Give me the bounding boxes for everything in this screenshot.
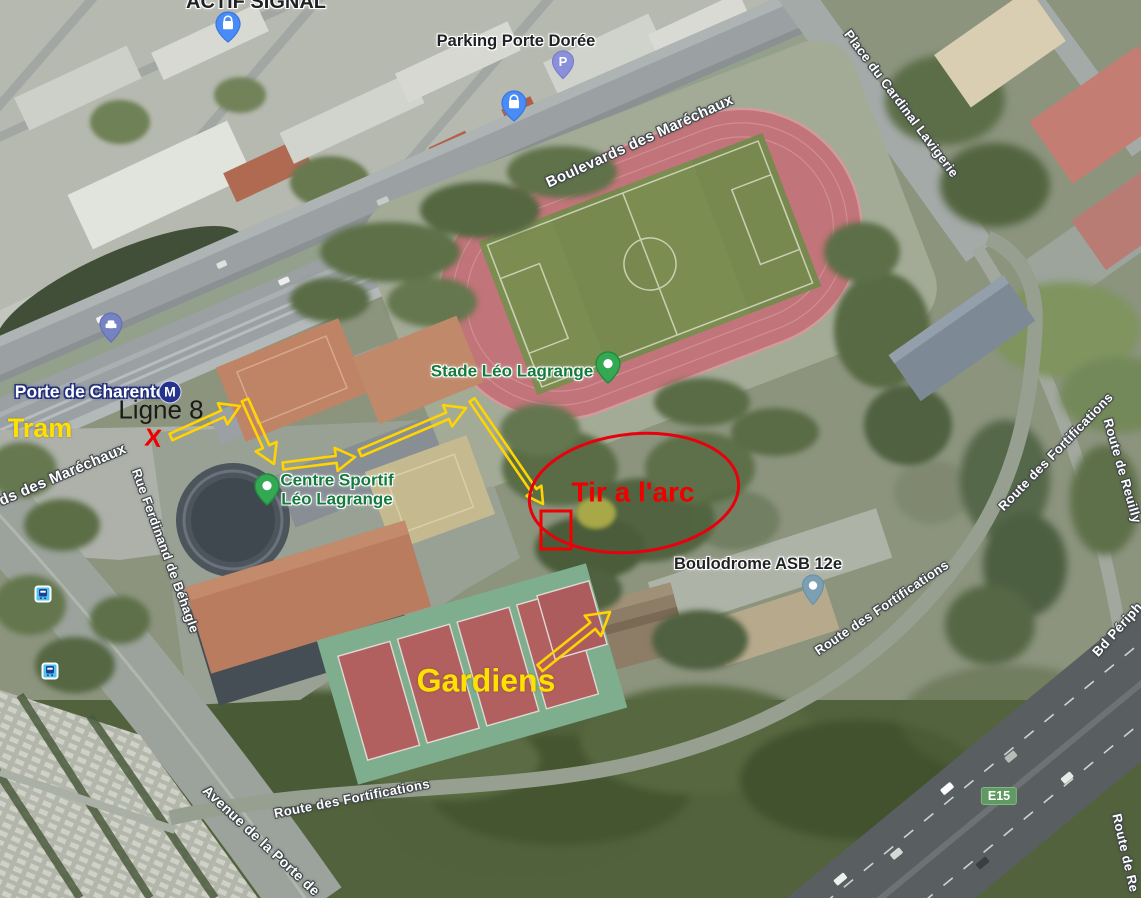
- shop-marker-actif-signal[interactable]: [215, 11, 241, 48]
- route-arrow: [283, 448, 355, 471]
- pin-shape: [803, 575, 824, 605]
- route-shield-e15: E15: [981, 787, 1017, 805]
- poi-marker-stade[interactable]: [595, 351, 621, 389]
- tram-stop-icon-2[interactable]: [42, 663, 59, 680]
- route-arrow: [242, 399, 277, 464]
- pin-dot: [262, 481, 271, 490]
- metro-logo[interactable]: M: [159, 381, 182, 404]
- train-icon: [45, 666, 56, 677]
- poi-marker-centre-sportif[interactable]: [254, 473, 280, 511]
- poi-label-boulodrome[interactable]: Boulodrome ASB 12e: [674, 555, 842, 573]
- poi-label-actif-signal[interactable]: ACTIF SIGNAL: [186, 0, 326, 13]
- car-rental-marker[interactable]: [99, 312, 123, 348]
- annotation-tram: Tram: [8, 414, 73, 444]
- tram-stop-icon-1[interactable]: [35, 586, 52, 603]
- annotation-x-mark: X: [143, 424, 162, 453]
- satellite-map-canvas[interactable]: Boulevards des Maréchaux vards des Maréc…: [0, 0, 1141, 898]
- poi-label-centre-sportif[interactable]: Centre Sportif Léo Lagrange: [280, 471, 393, 508]
- shop-marker-mid[interactable]: [501, 90, 527, 127]
- train-icon: [38, 589, 49, 600]
- poi-label-stade-leo-lagrange[interactable]: Stade Léo Lagrange: [431, 363, 593, 382]
- parking-p-glyph: P: [559, 54, 568, 69]
- annotation-tir-a-larc: Tir a l'arc: [572, 478, 695, 509]
- parking-marker-porte-doree[interactable]: P: [552, 50, 575, 85]
- poi-label-parking-porte-doree[interactable]: Parking Porte Dorée: [437, 32, 596, 50]
- annotation-gardiens: Gardiens: [417, 663, 556, 698]
- pin-dot: [809, 581, 817, 589]
- route-arrow: [359, 405, 466, 456]
- pin-dot: [603, 359, 612, 368]
- route-annotations: [0, 0, 1141, 898]
- poi-marker-boulodrome[interactable]: [801, 574, 825, 611]
